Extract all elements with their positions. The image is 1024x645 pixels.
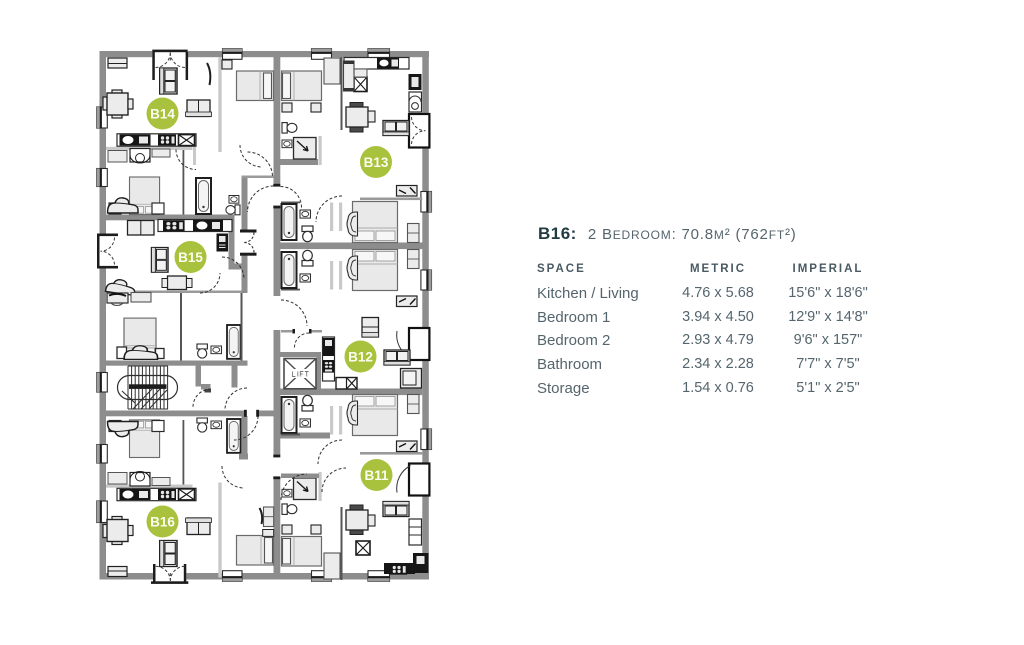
svg-text:B13: B13 xyxy=(364,155,389,170)
svg-text:B14: B14 xyxy=(150,106,175,121)
svg-text:B11: B11 xyxy=(364,468,389,483)
svg-text:B16: B16 xyxy=(150,514,175,529)
svg-text:B12: B12 xyxy=(348,349,373,364)
svg-text:B15: B15 xyxy=(178,250,203,265)
